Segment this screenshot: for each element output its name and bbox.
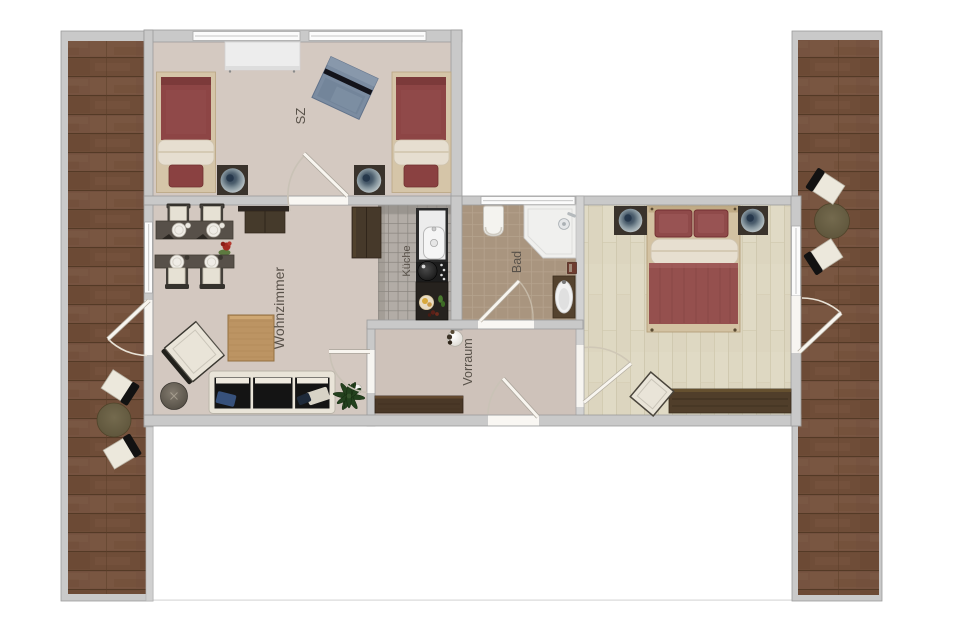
svg-text:Küche: Küche <box>401 245 413 276</box>
svg-text:SZ: SZ <box>293 108 308 125</box>
svg-text:Wohnzimmer: Wohnzimmer <box>271 267 287 350</box>
svg-text:Bad: Bad <box>510 251 524 273</box>
svg-text:Vorraum: Vorraum <box>461 338 475 385</box>
